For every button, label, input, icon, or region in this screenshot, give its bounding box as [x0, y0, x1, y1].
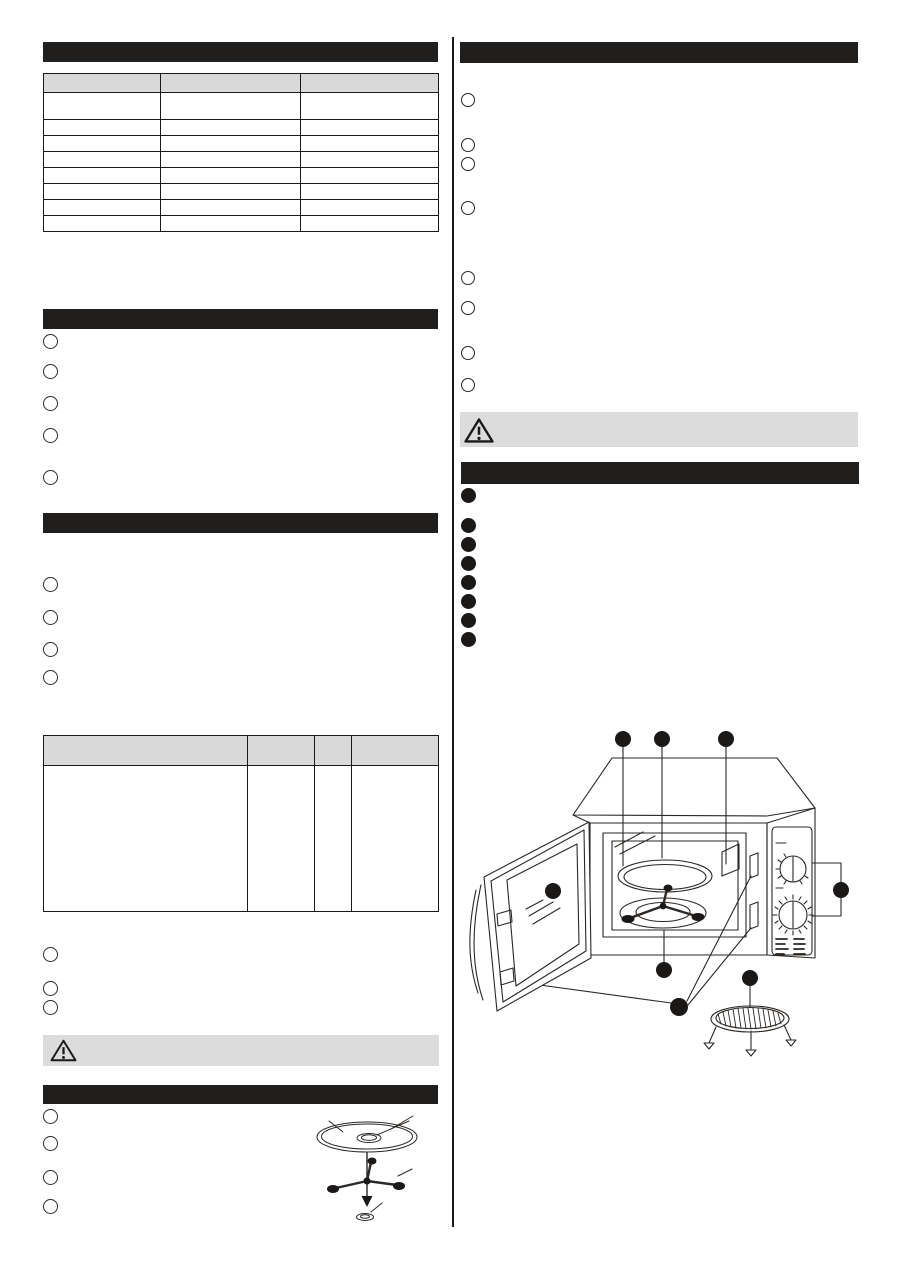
table-header-cell [161, 74, 301, 93]
waveguide-cover [722, 844, 739, 876]
table-cell [352, 766, 439, 912]
filled-bullet-icon [461, 556, 476, 571]
cooking-table [43, 735, 438, 912]
table-header-cell [44, 74, 161, 93]
callout-marker [656, 962, 672, 978]
table-cell [44, 152, 161, 168]
table-cell [301, 216, 439, 232]
circle-bullet-icon [461, 378, 475, 392]
panel-legend [776, 939, 805, 954]
table-cell [44, 216, 161, 232]
turntable-coupler [357, 1214, 374, 1221]
table-header-cell [44, 736, 248, 766]
list-item [43, 1136, 66, 1151]
table-header-cell [352, 736, 439, 766]
list-item [43, 981, 66, 996]
features-list [461, 0, 851, 1273]
circle-bullet-icon [461, 301, 475, 315]
list-item [43, 1170, 66, 1185]
table-row [44, 766, 439, 912]
figure-turntable-assembly [295, 1098, 445, 1233]
list-item [461, 537, 484, 552]
callout-marker [670, 998, 688, 1016]
filled-bullet-icon [461, 613, 476, 628]
table-cell [44, 120, 161, 136]
table-header-cell [301, 74, 439, 93]
table-cell [301, 168, 439, 184]
list-item [43, 470, 66, 485]
circle-bullet-icon [43, 364, 58, 379]
table-cell [301, 184, 439, 200]
table-header-row [44, 74, 439, 93]
right-section-bar-2 [461, 462, 859, 484]
column-divider [452, 37, 454, 1227]
table-cell [44, 168, 161, 184]
table-cell [44, 93, 161, 120]
circle-bullet-icon [43, 610, 58, 625]
list-item [461, 594, 484, 609]
table-row [44, 120, 439, 136]
oven-body [573, 758, 815, 958]
open-door [470, 822, 591, 1011]
spec-table [43, 73, 438, 232]
list-item [461, 575, 484, 590]
table-cell [161, 93, 301, 120]
list-item [43, 428, 66, 443]
table-cell [161, 168, 301, 184]
table-header-cell [248, 736, 315, 766]
left-section-bar-3 [43, 513, 438, 533]
right-bullet-list-1 [461, 0, 851, 1273]
warning-triangle-icon [50, 1038, 77, 1063]
right-warning-band [460, 412, 858, 447]
table-cell [161, 216, 301, 232]
list-item [43, 364, 66, 379]
table-header-row [44, 736, 439, 766]
door-latch-slot [750, 853, 758, 878]
left-section-bar-1 [43, 42, 438, 62]
callout-markers [545, 731, 849, 1016]
list-item [43, 396, 66, 411]
filled-bullet-icon [461, 488, 476, 503]
table-cell [315, 766, 352, 912]
door-latch-slot [750, 902, 758, 929]
table-row [44, 200, 439, 216]
control-panel [772, 827, 813, 955]
circle-bullet-icon [43, 947, 58, 962]
manual-page: { "colors": { "ink": "#1b1918", "section… [0, 0, 900, 1273]
list-item [43, 610, 66, 625]
table-row [44, 136, 439, 152]
table-cell [161, 152, 301, 168]
circle-bullet-icon [461, 93, 475, 107]
roller-ring [327, 1158, 405, 1194]
table [43, 735, 439, 912]
filled-bullet-icon [461, 537, 476, 552]
timer-knob [773, 895, 813, 935]
roller-ring [620, 885, 706, 929]
table-cell [161, 184, 301, 200]
circle-bullet-icon [43, 577, 58, 592]
list-item [461, 300, 483, 315]
table-cell [248, 766, 315, 912]
list-item [461, 613, 484, 628]
left-warning-band [43, 1035, 439, 1066]
circle-bullet-icon [43, 1170, 58, 1185]
power-knob [776, 854, 808, 884]
circle-bullet-icon [43, 1136, 58, 1151]
table-cell [301, 136, 439, 152]
filled-bullet-icon [461, 632, 476, 647]
table-cell [301, 93, 439, 120]
list-item [461, 156, 483, 171]
list-item [461, 92, 483, 107]
filled-bullet-icon [461, 575, 476, 590]
list-item [461, 488, 484, 503]
filled-bullet-icon [461, 518, 476, 533]
table-row [44, 152, 439, 168]
table-cell [301, 200, 439, 216]
list-item [461, 345, 483, 360]
list-item [461, 137, 483, 152]
callout-marker [654, 731, 670, 747]
callout-marker [615, 731, 631, 747]
list-item [461, 518, 484, 533]
table-cell [161, 136, 301, 152]
list-item [43, 1000, 66, 1015]
list-item [43, 947, 66, 962]
circle-bullet-icon [43, 1199, 58, 1214]
list-item [43, 642, 66, 657]
table-row [44, 184, 439, 200]
grill-rack [704, 1006, 796, 1056]
circle-bullet-icon [43, 428, 58, 443]
right-section-bar-1 [460, 42, 858, 63]
list-item [43, 1109, 66, 1124]
filled-bullet-icon [461, 594, 476, 609]
table-cell [44, 200, 161, 216]
table-cell [301, 120, 439, 136]
callout-marker [545, 883, 561, 899]
list-item [43, 334, 66, 349]
table [43, 73, 439, 232]
list-item [461, 632, 484, 647]
table-row [44, 168, 439, 184]
table-row [44, 93, 439, 120]
table-cell [44, 184, 161, 200]
callout-marker [718, 731, 734, 747]
list-item [43, 577, 66, 592]
callout-marker [742, 970, 758, 986]
circle-bullet-icon [461, 346, 475, 360]
list-item [461, 270, 483, 285]
circle-bullet-icon [461, 138, 475, 152]
circle-bullet-icon [43, 396, 58, 411]
table-cell [44, 136, 161, 152]
table-cell [301, 152, 439, 168]
circle-bullet-icon [43, 470, 58, 485]
list-item [461, 377, 483, 392]
table-cell [161, 200, 301, 216]
circle-bullet-icon [461, 271, 475, 285]
table-row [44, 216, 439, 232]
warning-triangle-icon [463, 417, 495, 444]
circle-bullet-icon [43, 1109, 58, 1124]
callout-marker [833, 882, 849, 898]
circle-bullet-icon [461, 201, 475, 215]
glass-tray [317, 1121, 417, 1152]
list-item [43, 670, 66, 685]
circle-bullet-icon [43, 1000, 58, 1015]
circle-bullet-icon [43, 334, 58, 349]
list-item [461, 556, 484, 571]
list-item [461, 200, 483, 215]
circle-bullet-icon [43, 642, 58, 657]
table-cell [44, 766, 248, 912]
circle-bullet-icon [43, 981, 58, 996]
circle-bullet-icon [43, 670, 58, 685]
table-cell [161, 120, 301, 136]
list-item [43, 1199, 66, 1214]
circle-bullet-icon [461, 157, 475, 171]
table-header-cell [315, 736, 352, 766]
figure-oven-overview [455, 710, 885, 1070]
left-section-bar-2 [43, 309, 438, 329]
